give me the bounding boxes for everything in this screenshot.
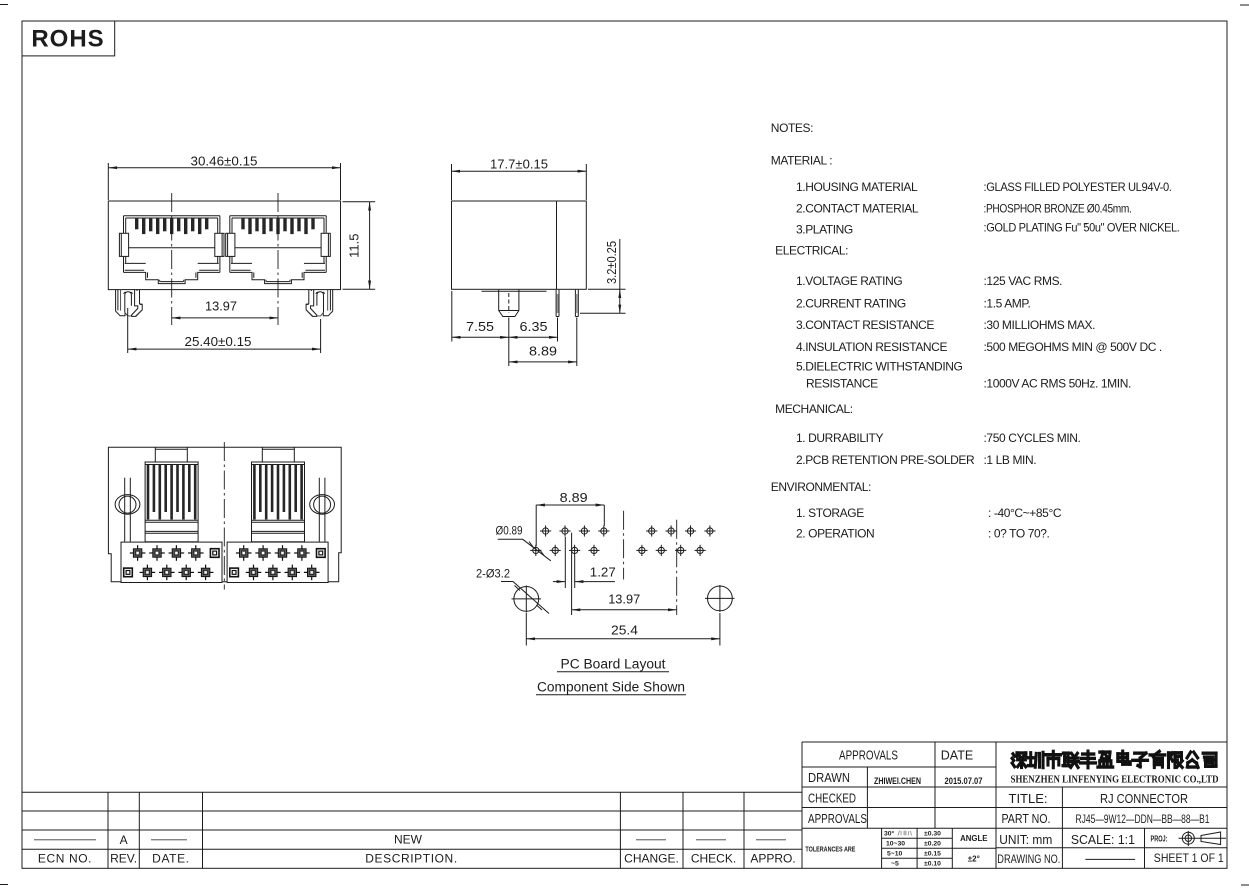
- svg-text:1.HOUSING MATERIAL: 1.HOUSING MATERIAL: [796, 180, 918, 194]
- svg-text:1.VOLTAGE RATING: 1.VOLTAGE RATING: [796, 274, 902, 288]
- svg-text:MECHANICAL:: MECHANICAL:: [775, 402, 853, 416]
- svg-text:5.DIELECTRIC WITHSTANDING: 5.DIELECTRIC WITHSTANDING: [796, 360, 963, 374]
- svg-text:REV.: REV.: [110, 852, 137, 866]
- svg-text:TITLE:: TITLE:: [1009, 791, 1048, 806]
- svg-text:DESCRIPTION.: DESCRIPTION.: [365, 852, 458, 866]
- svg-text:3.CONTACT RESISTANCE: 3.CONTACT RESISTANCE: [796, 318, 934, 332]
- svg-text:±0.15: ±0.15: [924, 851, 941, 858]
- svg-text:DRAWING NO.: DRAWING NO.: [997, 852, 1060, 866]
- svg-text:ENVIRONMENTAL:: ENVIRONMENTAL:: [771, 480, 871, 494]
- svg-text:ROHS: ROHS: [31, 26, 104, 53]
- svg-text:2. OPERATION: 2. OPERATION: [796, 527, 874, 541]
- svg-text:1. DURRABILITY: 1. DURRABILITY: [796, 431, 883, 445]
- svg-text:RJ CONNECTOR: RJ CONNECTOR: [1100, 792, 1188, 806]
- svg-text:17.7±0.15: 17.7±0.15: [490, 157, 548, 172]
- svg-text:±0.30: ±0.30: [924, 831, 941, 838]
- svg-text:: 0? TO 70?.: : 0? TO 70?.: [988, 527, 1050, 541]
- svg-text::GOLD PLATING Fu" ̃50u" OVER N: :GOLD PLATING Fu" ̃50u" OVER NICKEL.: [984, 221, 1180, 235]
- svg-text:2.PCB RETENTION PRE-SOLDER: 2.PCB RETENTION PRE-SOLDER: [796, 453, 975, 467]
- svg-text:1. STORAGE: 1. STORAGE: [796, 506, 864, 520]
- svg-text:RESISTANCE: RESISTANCE: [806, 377, 878, 391]
- svg-text:APPROVALS: APPROVALS: [808, 812, 867, 826]
- svg-text:SHEET 1 OF 1: SHEET 1 OF 1: [1154, 851, 1224, 865]
- svg-text:ECN NO.: ECN NO.: [38, 852, 92, 866]
- svg-text:Ø0.89: Ø0.89: [496, 524, 523, 538]
- svg-text:2015.07.07: 2015.07.07: [945, 776, 983, 786]
- svg-text:TOLERANCES ARE: TOLERANCES ARE: [805, 844, 855, 853]
- svg-text:Component Side Shown: Component Side Shown: [537, 680, 685, 695]
- svg-text:CHECK.: CHECK.: [691, 852, 736, 866]
- svg-text::GLASS FILLED POLYESTER UL94V-: :GLASS FILLED POLYESTER UL94V-0.: [984, 180, 1172, 194]
- svg-text:25.40±0.15: 25.40±0.15: [185, 334, 252, 349]
- svg-text::750 CYCLES MIN.: :750 CYCLES MIN.: [984, 431, 1081, 445]
- svg-text:CHECKED: CHECKED: [808, 792, 856, 806]
- svg-text::500 MEGOHMS MIN @ 500V DC .: :500 MEGOHMS MIN @ 500V DC .: [984, 340, 1162, 354]
- svg-text:3.PLATING: 3.PLATING: [796, 223, 853, 237]
- svg-text:UNIT: mm: UNIT: mm: [999, 833, 1052, 847]
- svg-text:PART NO.: PART NO.: [1002, 812, 1051, 826]
- svg-text:NEW: NEW: [394, 833, 423, 847]
- svg-text::30 MILLIOHMS MAX.: :30 MILLIOHMS MAX.: [984, 318, 1096, 332]
- svg-text:PROJ:: PROJ:: [1151, 834, 1168, 843]
- svg-text:2.CONTACT MATERIAL: 2.CONTACT MATERIAL: [796, 202, 919, 216]
- svg-text:ANGLE: ANGLE: [960, 834, 987, 843]
- svg-text:±0.20: ±0.20: [924, 841, 941, 848]
- svg-text:SCALE: 1:1: SCALE: 1:1: [1071, 833, 1135, 847]
- svg-text:DATE: DATE: [941, 749, 973, 763]
- svg-text:SHENZHEN LINFENYING ELECTRONIC: SHENZHEN LINFENYING ELECTRONIC CO.,LTD: [1011, 774, 1219, 786]
- svg-text:10~30: 10~30: [886, 841, 905, 848]
- svg-text:CHANGE.: CHANGE.: [624, 852, 679, 866]
- svg-text:A: A: [120, 833, 128, 847]
- svg-text::1.5 AMP.: :1.5 AMP.: [984, 297, 1031, 311]
- svg-text::1000V AC RMS 50Hz. 1MIN.: :1000V AC RMS 50Hz. 1MIN.: [984, 377, 1131, 391]
- svg-text:30°: 30°: [884, 830, 895, 838]
- svg-text:13.97: 13.97: [205, 299, 237, 314]
- svg-text:±2°: ±2°: [968, 855, 980, 864]
- svg-text:PC Board Layout: PC Board Layout: [561, 657, 666, 672]
- svg-text:RJ45—9W12—DDN—BB—88—B1: RJ45—9W12—DDN—BB—88—B1: [1076, 812, 1210, 826]
- svg-text:8.89: 8.89: [560, 490, 588, 505]
- svg-text:2.CURRENT RATING: 2.CURRENT RATING: [796, 297, 906, 311]
- svg-text:~5: ~5: [891, 861, 899, 868]
- svg-text:DATE.: DATE.: [152, 852, 189, 866]
- svg-text:NOTES:: NOTES:: [771, 121, 813, 135]
- svg-text:APPROVALS: APPROVALS: [839, 749, 898, 763]
- svg-text:ELECTRICAL:: ELECTRICAL:: [775, 244, 848, 258]
- svg-text:1.27: 1.27: [590, 565, 616, 580]
- svg-text:4.INSULATION RESISTANCE: 4.INSULATION RESISTANCE: [796, 340, 947, 354]
- svg-text:DRAWN: DRAWN: [808, 771, 850, 785]
- svg-text:MATERIAL :: MATERIAL :: [771, 154, 832, 168]
- svg-text:7.55: 7.55: [466, 319, 494, 334]
- svg-text::1 LB MIN.: :1 LB MIN.: [984, 453, 1037, 467]
- svg-text:13.97: 13.97: [608, 591, 640, 606]
- svg-text:ZHIWEI.CHEN: ZHIWEI.CHEN: [874, 776, 921, 786]
- svg-text:8.89: 8.89: [529, 344, 557, 359]
- svg-text:2-Ø3.2: 2-Ø3.2: [476, 567, 510, 581]
- svg-text:11.5: 11.5: [347, 234, 362, 258]
- svg-text:: -40°C~+85°C: : -40°C~+85°C: [988, 506, 1062, 520]
- svg-text:30.46±0.15: 30.46±0.15: [191, 154, 258, 169]
- svg-text:5~10: 5~10: [887, 851, 903, 858]
- svg-text:APPRO.: APPRO.: [750, 852, 795, 866]
- svg-text:6.35: 6.35: [520, 319, 548, 334]
- svg-text::125 VAC RMS.: :125 VAC RMS.: [984, 274, 1063, 288]
- svg-text:±0.10: ±0.10: [924, 861, 941, 868]
- svg-text::PHOSPHOR BRONZE Ø0.45mm.: :PHOSPHOR BRONZE Ø0.45mm.: [984, 202, 1132, 216]
- svg-text:3.2±0.25: 3.2±0.25: [604, 241, 619, 284]
- svg-text:25.4: 25.4: [611, 622, 638, 637]
